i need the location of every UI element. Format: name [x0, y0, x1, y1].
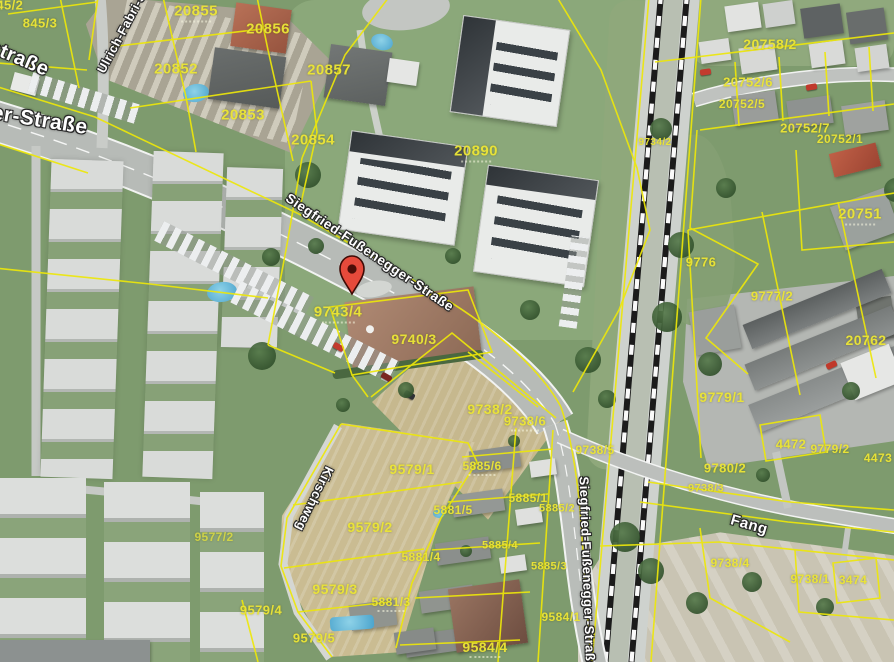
parcel-label: 9738/5	[575, 444, 614, 456]
parcel-label: 20752/6	[723, 76, 773, 89]
parcel-label: 9777/2	[751, 290, 793, 303]
parcel-label: 20758/2	[743, 37, 796, 51]
parcel-label: 20752/5	[719, 98, 765, 110]
parcel-label: 5885/4	[482, 541, 518, 552]
parcel-label: 20751	[838, 207, 882, 226]
street-label: er-Straße	[0, 102, 89, 138]
parcel-label: 20890	[454, 144, 498, 163]
parcel-label: 9579/3	[312, 582, 357, 596]
parcel-label: 20854	[291, 133, 335, 148]
parcel-label: 4473	[864, 452, 892, 464]
parcel-label: 9740/3	[391, 332, 436, 346]
parcel-label: 5881/4	[401, 551, 440, 563]
pin-center-dot	[347, 264, 356, 273]
parcel-label: 9577/2	[194, 531, 233, 543]
parcel-label: 20856	[246, 22, 290, 37]
parcel-label: 9738/3	[688, 484, 724, 495]
street-label: Kirschweg	[293, 465, 335, 534]
parcel-label: 3474	[839, 574, 867, 586]
parcel-label: 20853	[221, 108, 265, 123]
parcel-label: 5881/3	[371, 596, 410, 612]
street-label: Siegfried-Fußenegger-Straße	[578, 476, 598, 662]
parcel-label: 9579/2	[347, 520, 392, 534]
parcel-label: 9738/6	[504, 415, 546, 432]
parcel-label: 9579/5	[293, 632, 335, 645]
parcel-label: 20855	[174, 4, 218, 23]
street-label: Ulrich-Fabri-S	[95, 0, 148, 75]
map-canvas[interactable]: 845/2 845/3 20855 20856 20852 20857 2085…	[0, 0, 894, 662]
parcel-label: 5881/5	[433, 504, 472, 516]
parcel-label: 9579/1	[389, 462, 434, 476]
parcel-label: 9584/1	[541, 611, 580, 623]
street-label: Siegfried-Fußenegger-Straße	[283, 191, 456, 314]
parcel-label: 9734/2	[639, 138, 672, 148]
parcel-label: 20852	[154, 62, 198, 77]
street-label: Fang	[729, 512, 770, 537]
parcel-label: 9776	[686, 256, 717, 269]
parcel-label: 20762	[846, 333, 887, 347]
parcel-label: 9579/4	[240, 604, 282, 617]
parcel-label: 9779/2	[810, 443, 849, 455]
parcel-label: 845/2	[0, 0, 23, 12]
street-label: straße	[0, 37, 52, 80]
parcel-label: 20752/1	[817, 133, 863, 145]
parcel-label: 5885/3	[531, 562, 567, 573]
parcel-label: 5885/2	[539, 504, 575, 515]
location-marker-pin[interactable]	[338, 254, 366, 298]
parcel-label: 9584/4	[462, 640, 507, 658]
pin-body[interactable]	[340, 256, 364, 294]
parcel-label: 4472	[776, 438, 807, 451]
parcel-label: 5885/6	[462, 460, 501, 476]
labels-layer: 845/2 845/3 20855 20856 20852 20857 2085…	[0, 0, 894, 662]
parcel-label: 845/3	[23, 17, 58, 30]
parcel-label: 9738/1	[790, 573, 829, 585]
parcel-label: 9738/4	[710, 557, 749, 569]
parcel-label: 9780/2	[704, 462, 746, 475]
parcel-label: 20857	[307, 63, 351, 78]
parcel-label: 9779/1	[699, 390, 744, 404]
parcel-label: 9743/4	[314, 305, 362, 324]
